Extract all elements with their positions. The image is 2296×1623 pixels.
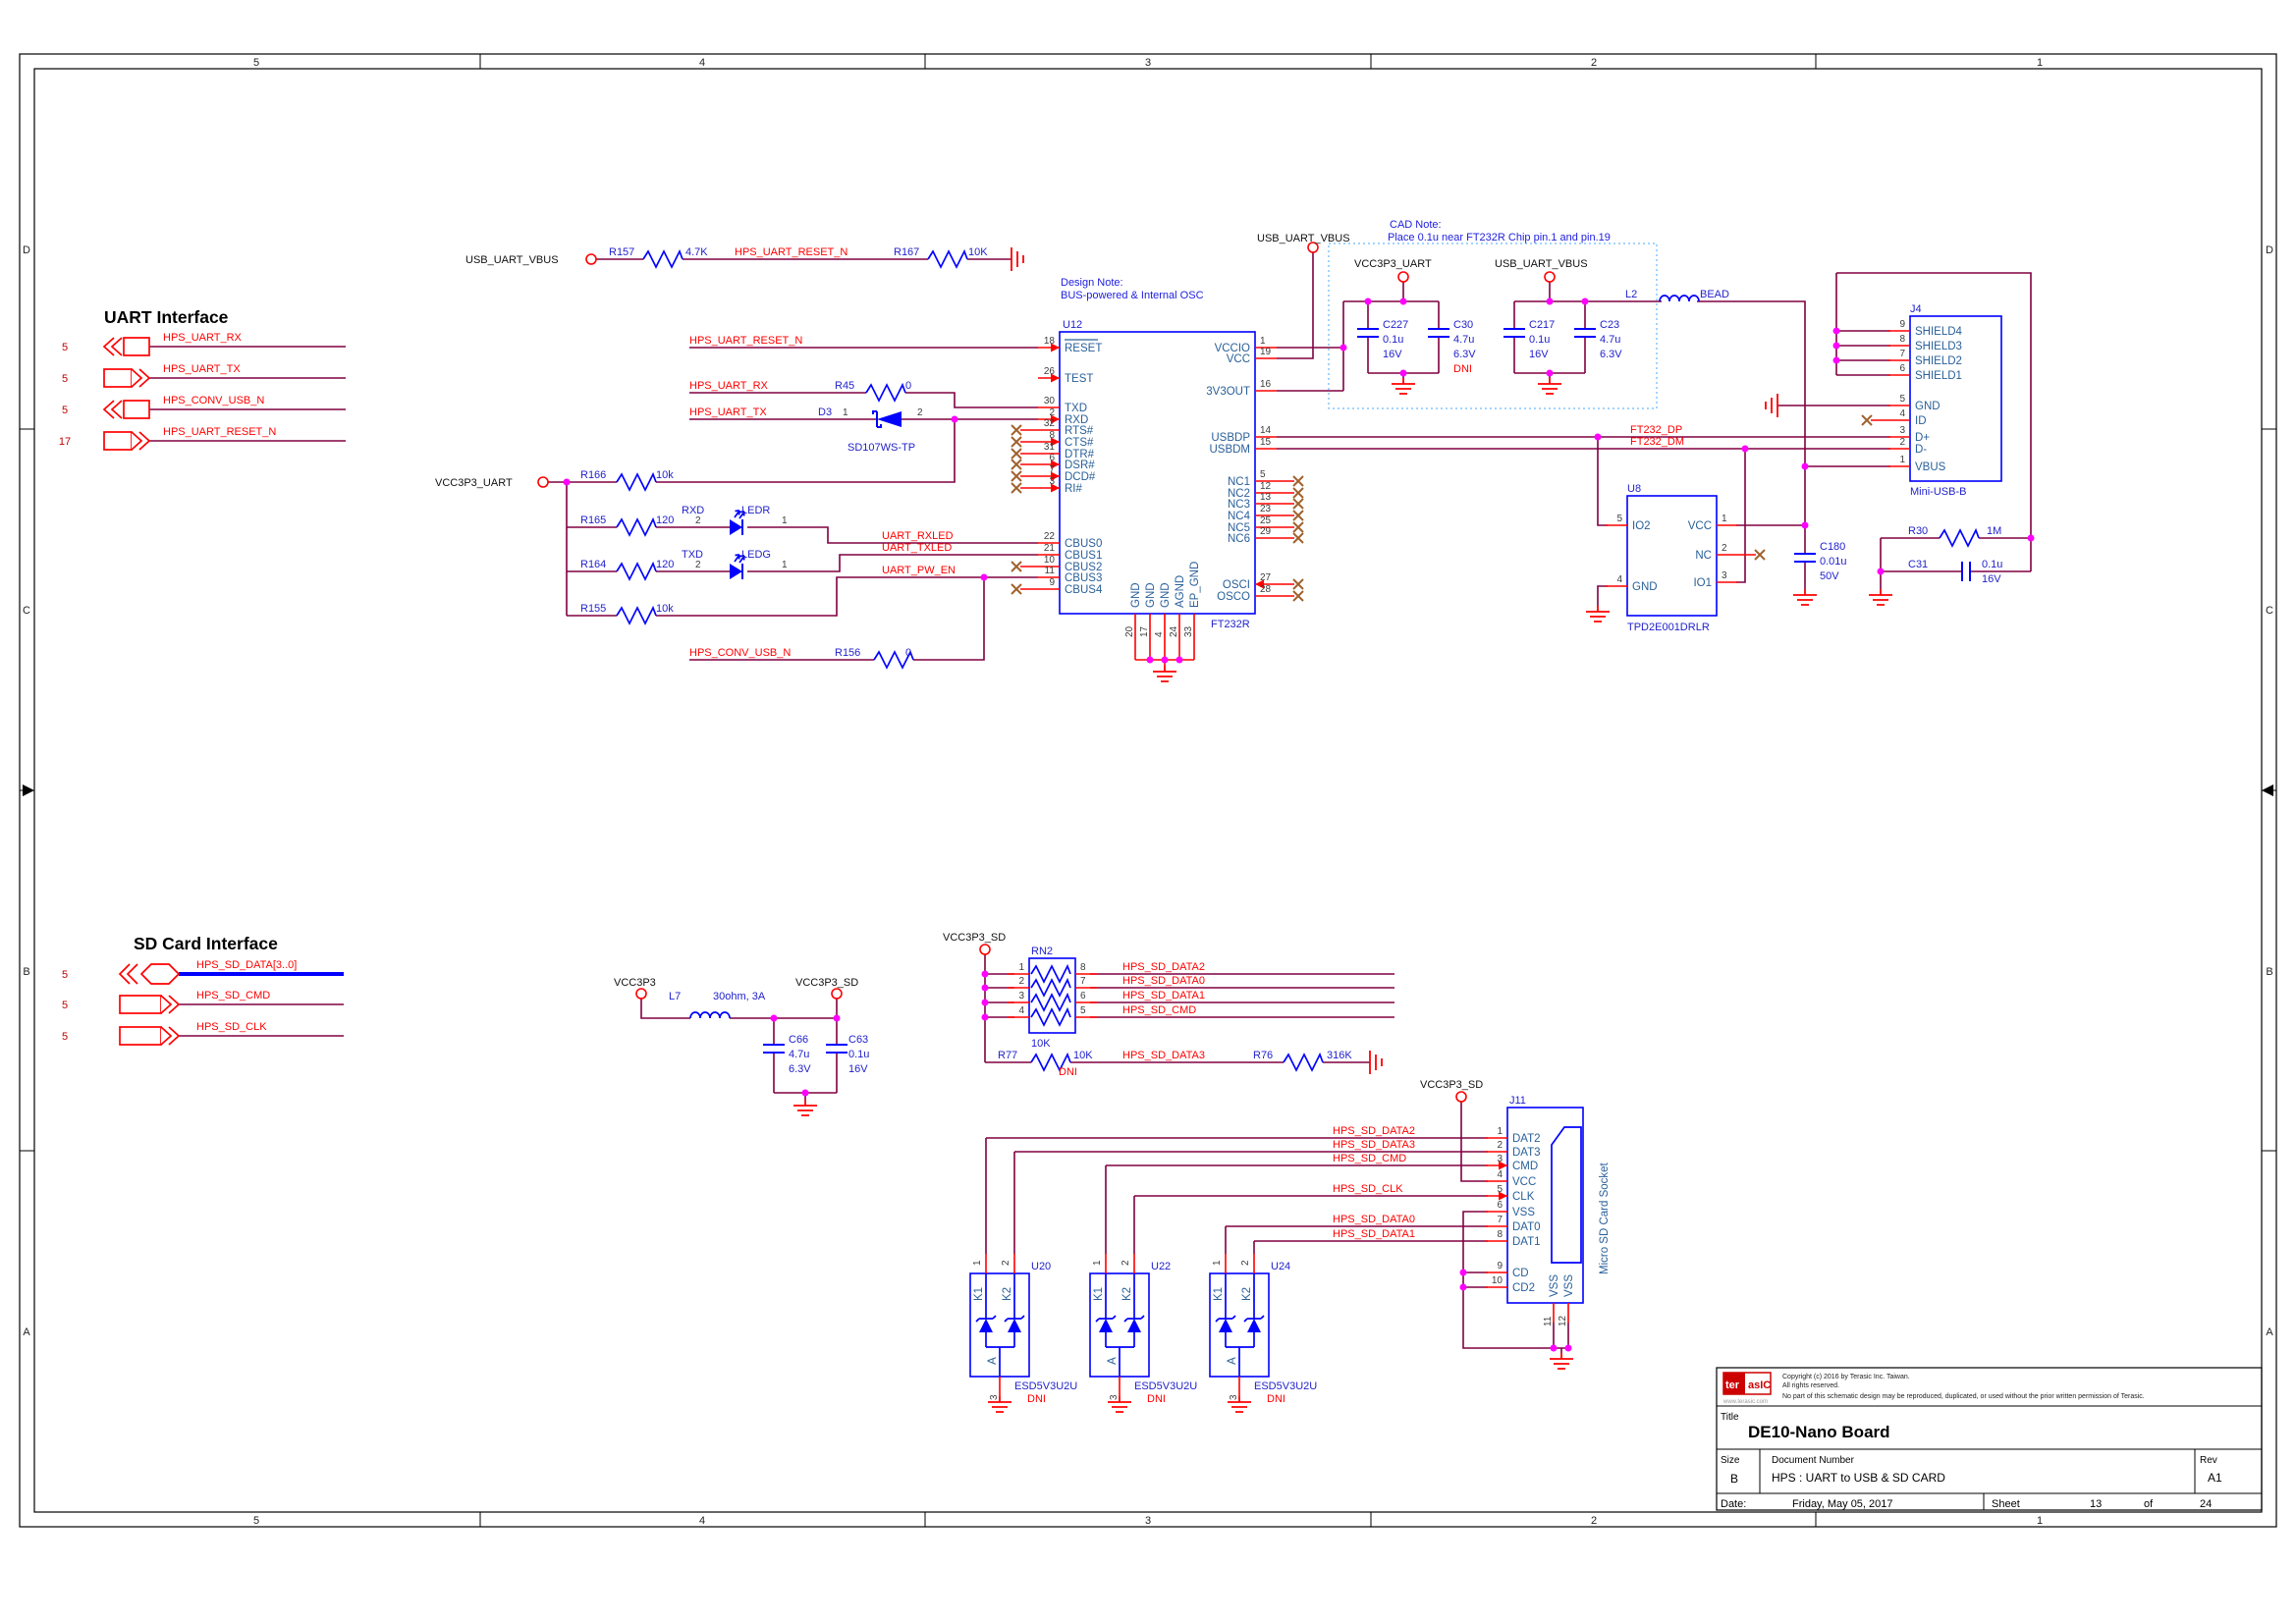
pin-num-rn2-4: 4 — [1018, 1005, 1024, 1016]
ref-label-316k: 316K — [1327, 1050, 1352, 1061]
ground-j4 — [1766, 394, 1777, 417]
port-chevrons — [104, 338, 122, 355]
pin-num-rn2-8: 8 — [1080, 962, 1086, 973]
net-label-hps-sd-cmd: HPS_SD_CMD — [1122, 1004, 1196, 1016]
resistor-r164 — [617, 564, 656, 579]
frame-ticks — [20, 54, 2276, 1527]
port-chevrons — [161, 1027, 179, 1045]
frame-inner — [34, 69, 2262, 1512]
capacitor-c66 — [763, 1045, 785, 1053]
pin-name-osco: OSCO — [1217, 591, 1250, 603]
pin-num-j11-12: 12 — [1558, 1315, 1568, 1326]
pin-num-u12-9: 9 — [1049, 577, 1055, 588]
frame-col-bottom-1: 4 — [699, 1515, 705, 1527]
pin-num-u12-13: 13 — [1260, 492, 1272, 503]
no-connect-x — [1011, 562, 1021, 571]
chip-part-u24: ESD5V3U2U — [1254, 1380, 1317, 1392]
ref-label-r45: R45 — [835, 380, 854, 392]
chip-part-u12: FT232R — [1211, 619, 1250, 630]
pin-num-u8-2: 2 — [1722, 543, 1727, 554]
pin-name-reset: RESET — [1065, 343, 1102, 354]
pin-num-u12-20: 20 — [1124, 625, 1135, 637]
resistor-r45 — [866, 385, 905, 401]
pin-num-rn2-1: 1 — [1018, 962, 1024, 973]
port-chevrons — [132, 432, 149, 450]
no-connect-x — [1011, 460, 1021, 469]
no-connect-x — [1862, 415, 1872, 425]
pin-num-u12-29: 29 — [1260, 526, 1272, 537]
chip-part-j4: Mini-USB-B — [1910, 486, 1966, 498]
chip-rn2: RN210K12348765 — [1008, 946, 1097, 1050]
pin-name-shield1: SHIELD1 — [1915, 370, 1962, 382]
title-block: ter asIC www.terasic.com Copyright (c) 2… — [1717, 1368, 2262, 1510]
pin-num-j4-1: 1 — [1899, 455, 1905, 465]
pin-num-u12-32: 32 — [1044, 418, 1056, 429]
ref-label-r76: R76 — [1253, 1050, 1273, 1061]
board-title: DE10-Nano Board — [1748, 1423, 1890, 1441]
num-label-1: 1 — [782, 515, 788, 526]
no-connect-x — [1293, 591, 1303, 601]
port-hps-sd-clk: 5HPS_SD_CLK — [62, 1021, 344, 1045]
port-body — [120, 1027, 161, 1045]
frame-row-left-3: A — [23, 1326, 30, 1338]
ref-label-16v: 16V — [1982, 573, 2001, 585]
pin-num-u12-7: 7 — [1049, 464, 1055, 475]
port-label-hps-uart-tx: HPS_UART_TX — [163, 363, 241, 375]
resistor-r155 — [617, 608, 656, 623]
net-label-hps-uart-reset-n: HPS_UART_RESET_N — [735, 246, 847, 258]
pin-name-nc1: NC1 — [1228, 476, 1250, 488]
ref-label-c66: C66 — [789, 1034, 808, 1046]
port-label-hps-sd-clk: HPS_SD_CLK — [196, 1021, 267, 1033]
date-label: Date: — [1721, 1498, 1746, 1510]
ref-label-16v: 16V — [1529, 349, 1549, 360]
pin-num-u12-26: 26 — [1044, 366, 1056, 377]
ref-label-r167: R167 — [894, 246, 919, 258]
port-number-hps-uart-rx: 5 — [62, 342, 68, 353]
pin-name-cmd: CMD — [1512, 1161, 1538, 1172]
ref-label-120: 120 — [656, 559, 674, 570]
pin-name-gnd: GND — [1632, 581, 1658, 593]
pin-name-id: ID — [1915, 415, 1927, 427]
pin-num-u8-3: 3 — [1722, 570, 1727, 581]
pw-label-vcc3p3-uart: VCC3P3_UART — [1354, 258, 1432, 270]
ground-j11 — [1550, 1353, 1573, 1369]
net-label-uart-pw-en: UART_PW_EN — [882, 565, 956, 576]
ground-c217 — [1538, 378, 1561, 394]
port-hps-sd-data-3-0: 5HPS_SD_DATA[3..0] — [62, 959, 344, 984]
pin-num-u12-1: 1 — [1260, 336, 1266, 347]
pin-num-u12-19: 19 — [1260, 347, 1272, 357]
port-number-hps-sd-data-3-0: 5 — [62, 969, 68, 981]
ref-label-r157: R157 — [609, 246, 634, 258]
frame-col-top-0: 5 — [253, 57, 259, 69]
pin-name-io2: IO2 — [1632, 520, 1651, 532]
port-number-hps-sd-clk: 5 — [62, 1031, 68, 1043]
port-chevrons — [120, 964, 137, 984]
port-label-hps-uart-reset-n: HPS_UART_RESET_N — [163, 426, 276, 438]
pin-num-u22-2: 2 — [1121, 1260, 1131, 1266]
num-label-1: 1 — [782, 560, 788, 570]
logo-url: www.terasic.com — [1722, 1399, 1768, 1405]
pin-num-j11-6: 6 — [1497, 1200, 1503, 1211]
doc-number-label: Document Number — [1772, 1455, 1855, 1466]
ref-label-rxd: RXD — [682, 505, 704, 516]
ref-label-c23: C23 — [1600, 319, 1619, 331]
pin-name-test: TEST — [1065, 373, 1093, 385]
sheet-total: 24 — [2200, 1498, 2212, 1510]
frame-row-left-0: D — [23, 244, 30, 256]
pin-num-u12-30: 30 — [1044, 396, 1056, 406]
pin-num-j11-2: 2 — [1497, 1140, 1503, 1151]
pin-num-u12-8: 8 — [1049, 430, 1055, 441]
capacitor-c31 — [1962, 562, 1970, 581]
port-hps-uart-rx: 5HPS_UART_RX — [62, 332, 346, 355]
copyright-line-3: No part of this schematic design may be … — [1782, 1393, 2145, 1400]
ref-label-ledg: LEDG — [741, 549, 771, 561]
chip-ref-u20: U20 — [1031, 1261, 1051, 1272]
ref-label-ledr: LEDR — [741, 505, 770, 516]
no-connect-x — [1011, 425, 1021, 435]
pin-name-shield4: SHIELD4 — [1915, 326, 1963, 338]
frame-col-bottom-3: 2 — [1591, 1515, 1597, 1527]
port-body — [104, 432, 132, 450]
port-chevrons — [104, 401, 122, 418]
chip-part-u22: ESD5V3U2U — [1134, 1380, 1197, 1392]
pin-name-gnd: GND — [1145, 582, 1157, 608]
port-body — [124, 338, 149, 355]
pin-name-gnd: GND — [1160, 582, 1172, 608]
port-label-hps-uart-rx: HPS_UART_RX — [163, 332, 243, 344]
size-value: B — [1730, 1472, 1738, 1486]
capacitor-c63 — [826, 1045, 847, 1053]
pin-num-u12-3: 3 — [1049, 476, 1055, 487]
no-connect-x — [1293, 579, 1303, 589]
power-usb-uart-vbus-3 — [1545, 272, 1555, 282]
ref-label-30ohm-3a: 30ohm, 3A — [713, 991, 766, 1002]
pin-name-nc: NC — [1695, 550, 1712, 562]
pin-num-u12-16: 16 — [1260, 379, 1272, 390]
pin-name-dsr: DSR# — [1065, 460, 1095, 471]
pin-num-j4-5: 5 — [1899, 394, 1905, 405]
pin-name-cbus4: CBUS4 — [1065, 584, 1103, 596]
resistor-rn2-3 — [1031, 995, 1070, 1010]
pin-num-j11-8: 8 — [1497, 1229, 1503, 1240]
pin-name-vbus: VBUS — [1915, 461, 1946, 473]
pin-num-j11-9: 9 — [1497, 1261, 1503, 1271]
no-connect-x — [1011, 483, 1021, 493]
net-label-hps-sd-data2: HPS_SD_DATA2 — [1122, 961, 1205, 973]
resistor-rn2-2 — [1031, 980, 1070, 996]
port-hps-uart-tx: 5HPS_UART_TX — [62, 363, 346, 387]
ref-label-10k: 10K — [1073, 1050, 1093, 1061]
pin-num-j11-1: 1 — [1497, 1126, 1503, 1137]
frame-col-bottom-2: 3 — [1145, 1515, 1151, 1527]
title-label: Title — [1721, 1412, 1739, 1423]
ref-label-r165: R165 — [580, 514, 606, 526]
ref-label-l2: L2 — [1625, 289, 1637, 300]
num-label-2: 2 — [917, 407, 923, 418]
ref-label-0-01u: 0.01u — [1820, 556, 1847, 568]
pin-name-cd: CD — [1512, 1268, 1529, 1279]
maroon-wires — [548, 252, 2031, 1353]
port-chevrons — [161, 996, 179, 1013]
pin-label-k1: K1 — [1093, 1287, 1105, 1301]
port-chevrons — [132, 369, 149, 387]
no-connect-x — [1011, 584, 1021, 594]
pin-num-u12-18: 18 — [1044, 336, 1056, 347]
pin-name-clk: CLK — [1512, 1191, 1535, 1203]
pw-label-vcc3p3-sd: VCC3P3_SD — [943, 932, 1006, 944]
resistor-r165 — [617, 519, 656, 535]
pin-num-j4-3: 3 — [1899, 425, 1905, 436]
port-body — [120, 996, 161, 1013]
pin-name-osci: OSCI — [1223, 579, 1250, 591]
pin-num-u22-3: 3 — [1109, 1394, 1120, 1400]
pin-num-rn2-7: 7 — [1080, 976, 1086, 987]
ref-label-10k: 10k — [656, 603, 674, 615]
ref-label-10k: 10k — [656, 469, 674, 481]
net-label-hps-uart-rx: HPS_UART_RX — [689, 380, 769, 392]
pin-num-u12-5: 5 — [1260, 469, 1266, 480]
power-vcc3p3-uart — [538, 477, 548, 487]
ref-label-c180: C180 — [1820, 541, 1845, 553]
ref-label-bead: BEAD — [1700, 289, 1729, 300]
frame-col-bottom-4: 1 — [2037, 1515, 2043, 1527]
resistor-r157 — [643, 251, 683, 267]
pin-name-cts: CTS# — [1065, 437, 1094, 449]
pin-name-shield2: SHIELD2 — [1915, 355, 1962, 367]
pin-name-dat1: DAT1 — [1512, 1236, 1541, 1248]
note-label-place-0-1u-near-ft232r-chip-pin-1-and-pin-19: Place 0.1u near FT232R Chip pin.1 and pi… — [1388, 232, 1611, 243]
pin-name-gnd: GND — [1130, 582, 1142, 608]
port-label-hps-sd-data-3-0: HPS_SD_DATA[3..0] — [196, 959, 297, 971]
pin-num-u22-1: 1 — [1092, 1260, 1103, 1266]
net-label-hps-sd-data3: HPS_SD_DATA3 — [1333, 1139, 1415, 1151]
ref-label-r30: R30 — [1908, 525, 1928, 537]
pin-num-u12-11: 11 — [1045, 566, 1056, 576]
pin-name-cbus0: CBUS0 — [1065, 538, 1102, 550]
pin-num-u12-6: 6 — [1049, 453, 1055, 463]
frame-col-top-1: 4 — [699, 57, 705, 69]
dni-label-dni: DNI — [1027, 1393, 1046, 1405]
frame-col-top-4: 1 — [2037, 57, 2043, 69]
copyright-line-1: Copyright (c) 2016 by Terasic Inc. Taiwa… — [1782, 1374, 1910, 1380]
frame-row-right-1: C — [2266, 605, 2273, 617]
logo-text-ter: ter — [1725, 1380, 1740, 1391]
title-label-sd-card-interface: SD Card Interface — [134, 934, 278, 953]
chip-u8: U8TPD2E001DRLR5IO24GND1VCC2NC3IO1 — [1606, 483, 1765, 633]
ground-ft232r — [1153, 666, 1176, 681]
pin-num-u12-24: 24 — [1169, 625, 1179, 637]
ref-label-0-1u: 0.1u — [1982, 559, 2002, 570]
pin-name-vss: VSS — [1512, 1207, 1535, 1218]
no-connect-x — [1293, 476, 1303, 486]
pin-num-u8-4: 4 — [1616, 574, 1622, 585]
pin-name-nc3: NC3 — [1228, 499, 1250, 511]
port-number-hps-sd-cmd: 5 — [62, 1000, 68, 1011]
frame-row-right-3: A — [2266, 1326, 2273, 1338]
ground-r167 — [1011, 247, 1023, 271]
pin-num-j4-8: 8 — [1899, 334, 1905, 345]
pin-num-u12-17: 17 — [1139, 625, 1150, 637]
pw-label-usb-uart-vbus: USB_UART_VBUS — [1495, 258, 1588, 270]
pw-label-vcc3p3-sd: VCC3P3_SD — [1420, 1079, 1483, 1091]
pin-num-j4-6: 6 — [1899, 363, 1905, 374]
pin-name-d: D+ — [1915, 432, 1930, 444]
pin-name-cbus1: CBUS1 — [1065, 550, 1102, 562]
ref-label-4-7u: 4.7u — [789, 1049, 809, 1060]
port-hps-conv-usb-n: 5HPS_CONV_USB_N — [62, 395, 346, 418]
capacitor-c30 — [1428, 329, 1449, 337]
ref-label-4-7u: 4.7u — [1600, 334, 1620, 346]
pin-num-rn2-5: 5 — [1080, 1005, 1086, 1016]
pin-num-u12-28: 28 — [1260, 584, 1272, 595]
dni-label-dni: DNI — [1453, 363, 1472, 375]
pin-num-u12-27: 27 — [1260, 572, 1272, 583]
ref-label-d3: D3 — [818, 406, 832, 418]
pin-name-dcd: DCD# — [1065, 471, 1096, 483]
port-hps-uart-reset-n: 17HPS_UART_RESET_N — [59, 426, 346, 450]
pw-label-vcc3p3-sd: VCC3P3_SD — [795, 977, 858, 989]
pin-label-k1: K1 — [1213, 1287, 1225, 1301]
pin-name-usbdp: USBDP — [1211, 432, 1250, 444]
schematic-canvas: 5HPS_UART_RX5HPS_UART_TX5HPS_CONV_USB_N1… — [0, 0, 2296, 1623]
frame-row-right-0: D — [2266, 244, 2273, 256]
sheet-label: Sheet — [1992, 1498, 2020, 1510]
port-number-hps-uart-tx: 5 — [62, 373, 68, 385]
pin-num-u12-4: 4 — [1154, 631, 1165, 637]
pin-name-txd: TXD — [1065, 403, 1087, 414]
port-body — [124, 401, 149, 418]
pin-name-vcc: VCC — [1512, 1176, 1536, 1188]
power-vcc3p3-uart-2 — [1398, 272, 1408, 282]
pin-label-k2: K2 — [1121, 1287, 1133, 1301]
resistor-r76 — [1284, 1055, 1323, 1070]
resistor-r167 — [928, 251, 967, 267]
ref-label-sd107ws-tp: SD107WS-TP — [847, 442, 915, 454]
ref-label-c31: C31 — [1908, 559, 1928, 570]
frame-row-left-1: C — [23, 605, 30, 617]
ref-label-6-3v: 6.3V — [1453, 349, 1476, 360]
pin-label-a: A — [1107, 1357, 1119, 1365]
dni-label-dni: DNI — [1059, 1066, 1077, 1078]
pin-num-rn2-6: 6 — [1080, 991, 1086, 1001]
port-number-hps-conv-usb-n: 5 — [62, 405, 68, 416]
resistor-r166 — [617, 474, 656, 490]
pin-name-d: D- — [1915, 444, 1927, 456]
port-body — [141, 964, 179, 984]
ref-label-4-7u: 4.7u — [1453, 334, 1474, 346]
ref-label-r77: R77 — [998, 1050, 1017, 1061]
ground-c66 — [793, 1100, 817, 1115]
pin-name-ri: RI# — [1065, 483, 1083, 495]
pin-name-io1: IO1 — [1693, 577, 1712, 589]
pin-num-u12-15: 15 — [1260, 437, 1272, 448]
pin-name-nc6: NC6 — [1228, 533, 1250, 545]
date-value: Friday, May 05, 2017 — [1792, 1498, 1893, 1510]
ground-c227 — [1392, 378, 1415, 394]
pin-name-dat0: DAT0 — [1512, 1221, 1541, 1233]
ref-label-6-3v: 6.3V — [1600, 349, 1622, 360]
frame-outer — [20, 54, 2276, 1527]
no-connect-x — [1293, 533, 1303, 543]
pin-num-u12-12: 12 — [1260, 481, 1272, 492]
num-label-2: 2 — [695, 515, 701, 526]
capacitor-c180 — [1794, 554, 1816, 562]
pin-num-j11-4: 4 — [1497, 1169, 1503, 1180]
num-label-2: 2 — [695, 560, 701, 570]
power-vcc3p3-sd-2 — [980, 945, 990, 954]
ref-label-l7: L7 — [669, 991, 681, 1002]
ref-label-10k: 10K — [968, 246, 988, 258]
pin-num-j4-2: 2 — [1899, 437, 1905, 448]
resistor-rn2-4 — [1031, 1009, 1070, 1025]
ref-label-6-3v: 6.3V — [789, 1063, 811, 1075]
pin-name-vcc: VCC — [1688, 520, 1712, 532]
ref-label-0-1u: 0.1u — [1383, 334, 1403, 346]
net-label-ft232-dm: FT232_DM — [1630, 436, 1684, 448]
net-label-uart-txled: UART_TXLED — [882, 542, 952, 554]
pin-num-u12-2: 2 — [1049, 407, 1055, 418]
net-label-hps-sd-data1: HPS_SD_DATA1 — [1122, 990, 1205, 1001]
no-connect-x — [1293, 488, 1303, 498]
pin-num-j11-3: 3 — [1497, 1154, 1503, 1164]
size-label: Size — [1721, 1455, 1740, 1466]
chip-ref-j11: J11 — [1509, 1095, 1526, 1107]
pin-num-u12-23: 23 — [1260, 504, 1272, 514]
pin-num-u12-31: 31 — [1044, 442, 1056, 453]
pin-num-u20-3: 3 — [989, 1394, 1000, 1400]
pin-name-vss: VSS — [1549, 1274, 1560, 1297]
no-connect-x — [1293, 511, 1303, 520]
net-label-hps-sd-data1: HPS_SD_DATA1 — [1333, 1228, 1415, 1240]
title-label-uart-interface: UART Interface — [104, 307, 229, 327]
note-label-bus-powered-internal-osc: BUS-powered & Internal OSC — [1061, 290, 1204, 301]
net-label-hps-sd-data2: HPS_SD_DATA2 — [1333, 1125, 1415, 1137]
pw-label-vcc3p3: VCC3P3 — [614, 977, 656, 989]
ref-label-0: 0 — [905, 647, 911, 659]
pin-name-shield3: SHIELD3 — [1915, 341, 1962, 352]
ref-label-0-1u: 0.1u — [848, 1049, 869, 1060]
frame-arrow-right — [2262, 784, 2273, 796]
copyright-line-2: All rights reserved. — [1782, 1382, 1839, 1389]
ref-label-4-7k: 4.7K — [685, 246, 708, 258]
sd-card-outline — [1552, 1127, 1581, 1263]
pin-num-u12-22: 22 — [1044, 531, 1056, 542]
pin-name-agnd: AGND — [1175, 575, 1186, 608]
resistor-r30 — [1940, 530, 1979, 546]
pin-num-u12-14: 14 — [1260, 425, 1272, 436]
chip-part-rn2: 10K — [1031, 1038, 1051, 1050]
pin-name-rts: RTS# — [1065, 425, 1094, 437]
no-connect-x — [1011, 471, 1021, 481]
power-usb-uart-vbus — [586, 254, 596, 264]
frame-arrow-left — [23, 784, 34, 796]
ref-label-1m: 1M — [1987, 525, 2001, 537]
pin-name-cd2: CD2 — [1512, 1282, 1535, 1294]
ref-label-c217: C217 — [1529, 319, 1555, 331]
frame-col-bottom-0: 5 — [253, 1515, 259, 1527]
pin-name-dat3: DAT3 — [1512, 1147, 1541, 1159]
ref-label-r155: R155 — [580, 603, 606, 615]
ground-c180 — [1793, 589, 1817, 605]
chip-ref-u12: U12 — [1063, 319, 1082, 331]
inductor-l2-bead — [1660, 296, 1699, 301]
port-label-hps-conv-usb-n: HPS_CONV_USB_N — [163, 395, 264, 406]
power-vcc3p3-sd-3 — [1456, 1092, 1466, 1102]
pin-label-k2: K2 — [1002, 1287, 1013, 1301]
